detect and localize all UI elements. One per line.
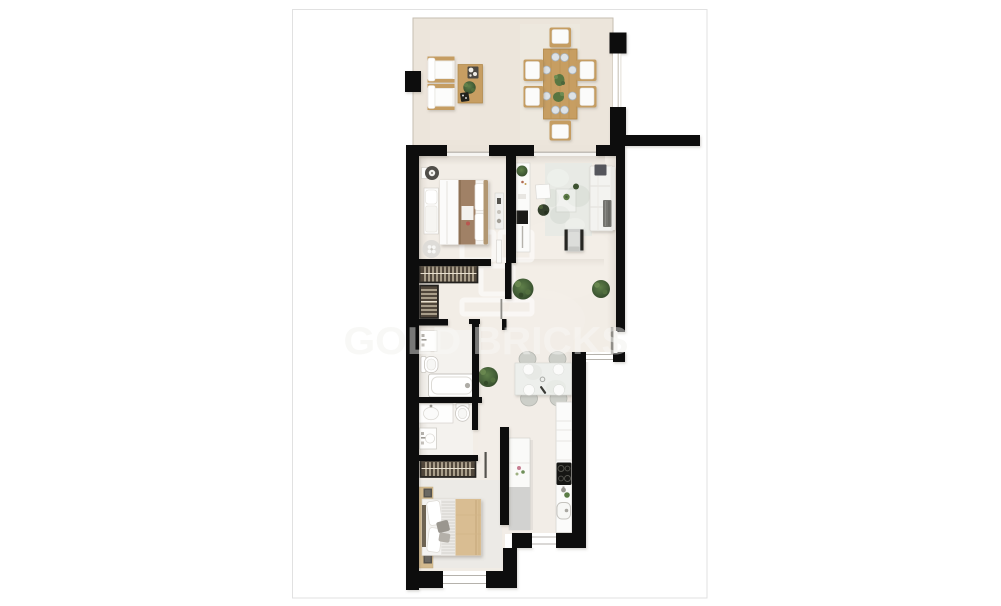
svg-text:GOLD BRICKS: GOLD BRICKS	[344, 320, 629, 363]
